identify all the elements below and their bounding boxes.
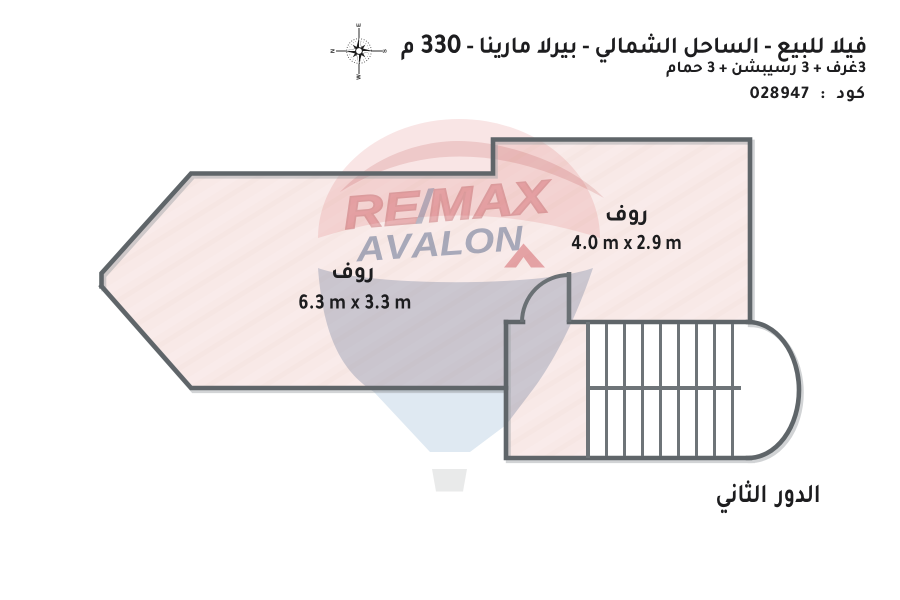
svg-text:E: E <box>357 23 363 27</box>
svg-text:S: S <box>383 49 389 53</box>
svg-text:W: W <box>357 74 363 80</box>
svg-text:N: N <box>331 49 337 53</box>
